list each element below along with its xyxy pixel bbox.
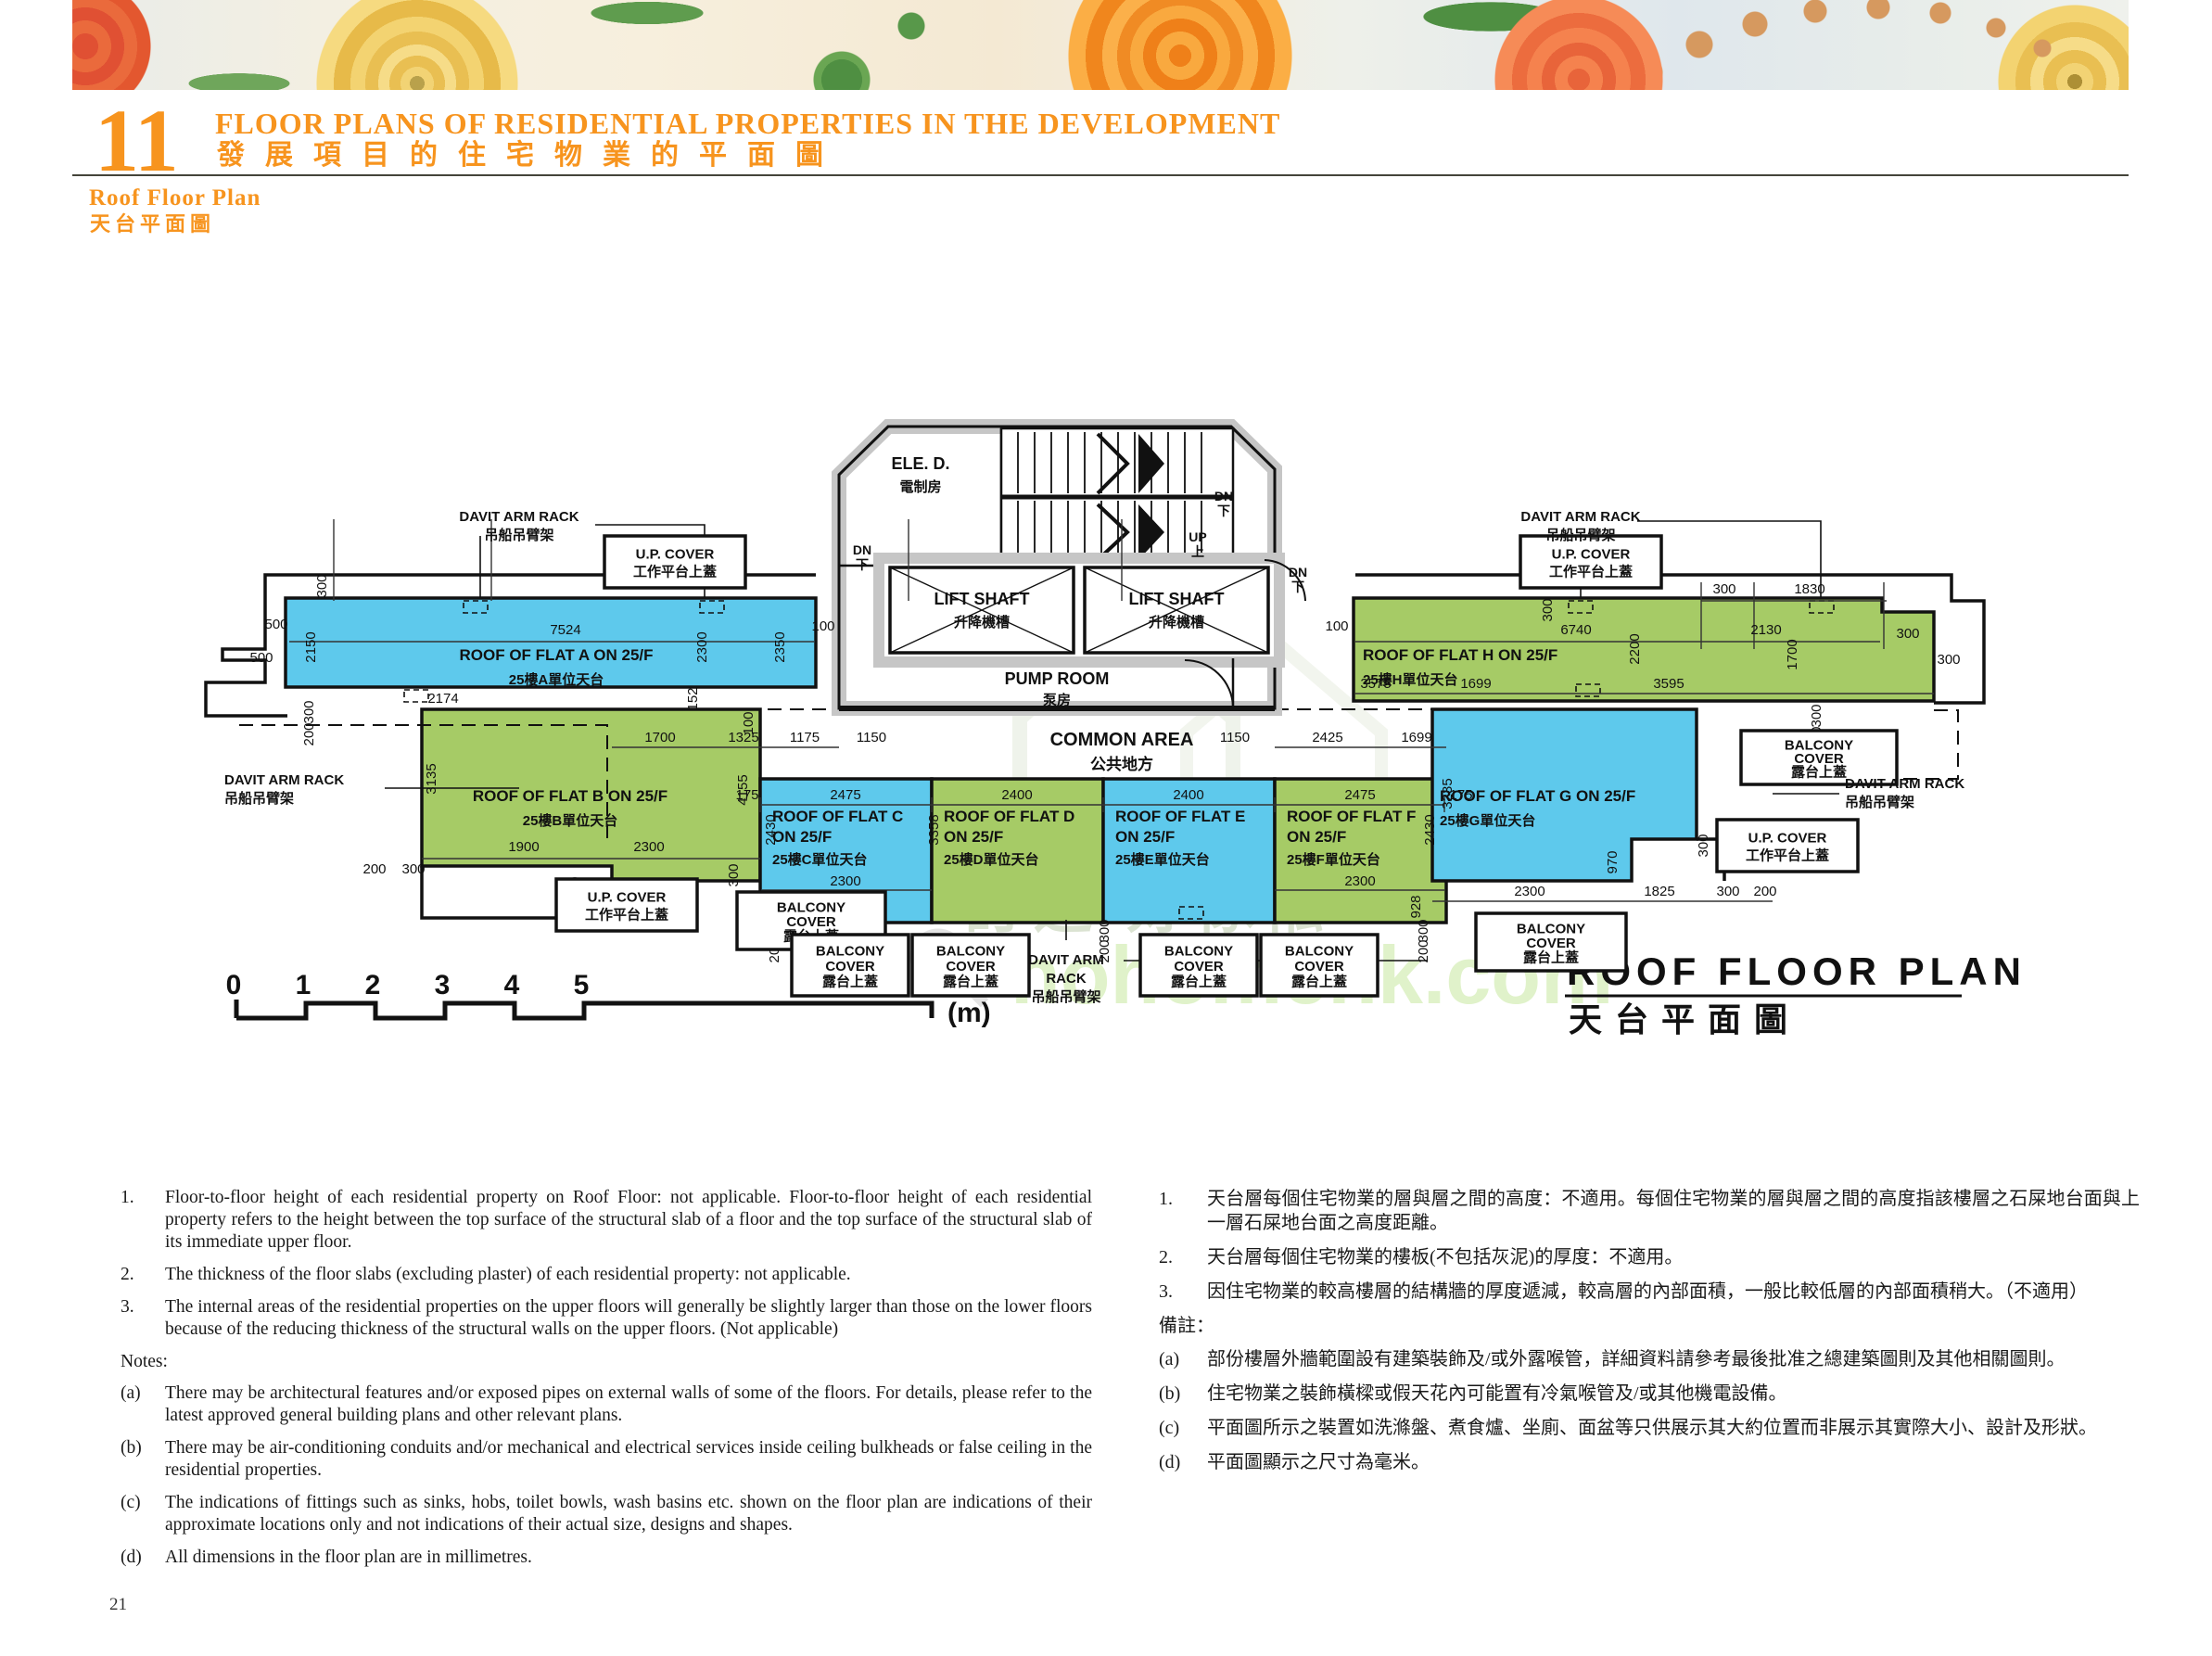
callout-text: BALCONY	[816, 944, 884, 960]
dimension-label: 1830	[1794, 581, 1824, 597]
note-number: 3.	[1159, 1280, 1207, 1304]
note-text: 天台層每個住宅物業的樓板(不包括灰泥)的厚度：不適用。	[1207, 1245, 2140, 1269]
plan-title-block: ROOF FLOOR PLAN 天台平面圖	[1565, 949, 2027, 1038]
dimension-label: 200	[362, 861, 386, 877]
flat-a-label: ROOF OF FLAT A ON 25/F	[459, 646, 653, 664]
flat-g-label: 25樓G單位天台	[1440, 812, 1535, 829]
dimension-label: 3595	[1653, 676, 1684, 692]
note-text: There may be air-conditioning conduits a…	[165, 1437, 1092, 1482]
dimension-label: 2130	[1750, 622, 1781, 638]
scale-tick-1: 1	[296, 970, 311, 1000]
note-text: 平面圖顯示之尺寸為毫米。	[1207, 1450, 2140, 1474]
callout-text: COVER	[1294, 959, 1344, 974]
note-number: 1.	[1159, 1187, 1207, 1235]
callout-text: 工作平台上蓋	[633, 563, 717, 580]
dimension-label: 1700	[1785, 639, 1800, 669]
flat-h-label: 25樓H單位天台	[1363, 671, 1458, 688]
dimension-label: 2300	[830, 873, 860, 889]
dimension-label: 300	[1416, 919, 1431, 942]
dimension-label: 1150	[1220, 730, 1250, 745]
dn-label-1: DN	[853, 542, 871, 557]
dimension-label: 1825	[1644, 884, 1674, 899]
davit-arm-rack-label: DAVIT ARM RACK	[459, 509, 578, 525]
dimension-label: 1325	[728, 730, 758, 745]
dimension-label: 100	[1325, 618, 1348, 634]
callout-text: BALCONY	[1285, 944, 1354, 960]
flat-e-label: 25樓E單位天台	[1115, 851, 1210, 868]
dimension-label: 2174	[427, 691, 458, 707]
flat-a-label: 25樓A單位天台	[509, 671, 604, 688]
flat-e-label: ROOF OF FLAT E	[1115, 808, 1245, 825]
davit-arm-rack-label: 吊船吊臂架	[1031, 988, 1100, 1005]
note-text: The indications of fittings such as sink…	[165, 1492, 1092, 1536]
dimension-label: 3358	[926, 814, 942, 845]
flat-b-label: 25樓B單位天台	[523, 812, 618, 829]
dimension-label: 300	[1716, 884, 1739, 899]
callout-text: 工作平台上蓋	[1746, 847, 1829, 863]
notes-label: Notes:	[121, 1351, 1092, 1373]
note-number: (a)	[1159, 1347, 1207, 1371]
dimension-label: 2350	[772, 631, 788, 662]
flat-d-label: 25樓D單位天台	[944, 851, 1039, 868]
pump-room-label-zh: 泵房	[1043, 692, 1071, 708]
davit-arm-rack-label: 吊船吊臂架	[224, 790, 294, 807]
note-number: (d)	[121, 1547, 165, 1569]
davit-arm-rack-label: 吊船吊臂架	[1545, 527, 1615, 543]
pump-room-label: PUMP ROOM	[1005, 669, 1110, 688]
scale-tick-5: 5	[574, 970, 590, 1000]
dimension-label: 100	[811, 618, 834, 634]
note-number: (c)	[121, 1492, 165, 1536]
callout-text: U.P. COVER	[1552, 547, 1631, 563]
callout-text: BALCONY	[777, 900, 845, 916]
dimension-label: 300	[1896, 626, 1919, 642]
dimension-label: 2400	[1173, 787, 1203, 803]
flat-b-label: ROOF OF FLAT B ON 25/F	[473, 787, 667, 805]
note-item: (a)There may be architectural features a…	[121, 1382, 1092, 1427]
lift-shaft-1-label: LIFT SHAFT	[934, 590, 1030, 608]
dimension-label: 2475	[1344, 787, 1375, 803]
up-label-zh: 上	[1191, 544, 1204, 559]
note-item: (c)平面圖所示之裝置如洗滌盤、煮食爐、坐廁、面盆等只供展示其大約位置而非展示其…	[1159, 1416, 2140, 1440]
dimension-label: 300	[1712, 581, 1735, 597]
dimension-label: 7524	[550, 622, 580, 638]
callout-text: 露台上蓋	[1171, 974, 1227, 990]
dimension-label: 2150	[303, 631, 319, 662]
note-item: 1.Floor-to-floor height of each resident…	[121, 1187, 1092, 1254]
callout-text: U.P. COVER	[588, 890, 667, 906]
dn-label-3-zh: 下	[1291, 580, 1304, 594]
dn-label-2: DN	[1214, 489, 1233, 503]
note-text: 住宅物業之裝飾橫樑或假天花內可能置有冷氣喉管及/或其他機電設備。	[1207, 1382, 2140, 1406]
note-item: (d)平面圖顯示之尺寸為毫米。	[1159, 1450, 2140, 1474]
note-text: The internal areas of the residential pr…	[165, 1296, 1092, 1341]
flat-g-label: ROOF OF FLAT G ON 25/F	[1440, 787, 1635, 805]
note-number: 2.	[121, 1264, 165, 1286]
note-item: (d)All dimensions in the floor plan are …	[121, 1547, 1092, 1569]
callout-text: BALCONY	[1164, 944, 1233, 960]
callout-text: BALCONY	[936, 944, 1005, 960]
dimension-label: 2300	[1514, 884, 1545, 899]
dimension-label: 300	[726, 863, 742, 886]
note-item: 3.The internal areas of the residential …	[121, 1296, 1092, 1341]
dimension-label: 200	[1416, 939, 1431, 962]
scale-tick-3: 3	[435, 970, 451, 1000]
dimension-label: 2400	[1001, 787, 1032, 803]
dn-label-1-zh: 下	[856, 557, 869, 572]
notes-label: 備註：	[1159, 1314, 2140, 1338]
callout-text: COVER	[825, 959, 875, 974]
dimension-label: 2300	[633, 839, 664, 855]
scale-tick-2: 2	[365, 970, 381, 1000]
callout-text: 工作平台上蓋	[1549, 563, 1633, 580]
scale-tick-4: 4	[504, 970, 520, 1000]
dimension-label: 200	[1753, 884, 1776, 899]
note-text: There may be architectural features and/…	[165, 1382, 1092, 1427]
note-text: The thickness of the floor slabs (exclud…	[165, 1264, 1092, 1286]
dimension-label: 3135	[424, 763, 439, 794]
plan-title-zh: 天台平面圖	[1569, 1000, 1800, 1038]
page-number: 21	[109, 1595, 127, 1615]
flat-d-label: ROOF OF FLAT D	[944, 808, 1074, 825]
brochure-page: 11 FLOOR PLANS OF RESIDENTIAL PROPERTIES…	[0, 0, 2212, 1656]
dimension-label: 1175	[790, 730, 820, 745]
note-item: (b)住宅物業之裝飾橫樑或假天花內可能置有冷氣喉管及/或其他機電設備。	[1159, 1382, 2140, 1406]
dimension-label: 300	[1696, 834, 1711, 857]
flat-d-label: ON 25/F	[944, 828, 1003, 846]
dimension-label: 2425	[1312, 730, 1342, 745]
flat-f-label: 25樓F單位天台	[1287, 851, 1380, 868]
davit-arm-rack-label: 吊船吊臂架	[1845, 794, 1914, 810]
common-area-label-zh: 公共地方	[1090, 755, 1153, 773]
callout-text: COVER	[946, 959, 996, 974]
dimension-label: 970	[1605, 850, 1621, 873]
davit-arm-rack-label: DAVIT ARM RACK	[1520, 509, 1640, 525]
note-item: 1.天台層每個住宅物業的層與層之間的高度：不適用。每個住宅物業的層與層之間的高度…	[1159, 1187, 2140, 1235]
roof-floor-plan-drawing: 訂造 好傢俬 hohomehk.com	[0, 0, 2212, 1168]
note-number: (b)	[1159, 1382, 1207, 1406]
note-item: 2.The thickness of the floor slabs (excl…	[121, 1264, 1092, 1286]
flat-c-label: 25樓C單位天台	[772, 851, 868, 868]
common-area-label: COMMON AREA	[1050, 730, 1194, 750]
callout-text: 露台上蓋	[943, 974, 998, 990]
note-number: 3.	[121, 1296, 165, 1341]
dimension-label: 500	[264, 617, 287, 632]
note-text: 部份樓層外牆範圍設有建築裝飾及/或外露喉管，詳細資料請參考最後批准之總建築圖則及…	[1207, 1347, 2140, 1371]
dimension-label: 1150	[857, 730, 886, 745]
dimension-label: 1700	[644, 730, 675, 745]
note-number: 2.	[1159, 1245, 1207, 1269]
dimension-label: 2430	[1422, 814, 1438, 845]
notes-english: 1.Floor-to-floor height of each resident…	[121, 1187, 1092, 1579]
callout-text: 露台上蓋	[1291, 974, 1347, 990]
dimension-label: 175	[735, 787, 758, 803]
dimension-label: 300	[1809, 704, 1824, 727]
note-number: (c)	[1159, 1416, 1207, 1440]
callout-text: 工作平台上蓋	[585, 906, 668, 923]
note-text: 平面圖所示之裝置如洗滌盤、煮食爐、坐廁、面盆等只供展示其大約位置而非展示其實際大…	[1207, 1416, 2140, 1440]
note-text: All dimensions in the floor plan are in …	[165, 1547, 1092, 1569]
davit-arm-rack-label: RACK	[1046, 971, 1086, 987]
dimension-label: 300	[401, 861, 425, 877]
davit-arm-rack-label: DAVIT ARM RACK	[224, 772, 344, 788]
flat-c-label: ON 25/F	[772, 828, 832, 846]
dimension-label: 1900	[508, 839, 539, 855]
note-item: (b)There may be air-conditioning conduit…	[121, 1437, 1092, 1482]
callout-text: COVER	[1174, 959, 1224, 974]
dimension-label: 200	[301, 722, 317, 745]
note-text: 因住宅物業的較高樓層的結構牆的厚度遞減，較高層的內部面積，一般比較低層的內部面積…	[1207, 1280, 2140, 1304]
flat-f-label: ROOF OF FLAT F	[1287, 808, 1416, 825]
notes-chinese: 1.天台層每個住宅物業的層與層之間的高度：不適用。每個住宅物業的層與層之間的高度…	[1159, 1187, 2140, 1484]
lift-shaft-2-label: LIFT SHAFT	[1129, 590, 1225, 608]
davit-arm-rack-label: DAVIT ARM	[1028, 952, 1104, 968]
note-text: Floor-to-floor height of each residentia…	[165, 1187, 1092, 1254]
scale-unit: (m)	[947, 998, 991, 1028]
note-number: (d)	[1159, 1450, 1207, 1474]
dimension-label: 300	[314, 574, 330, 597]
lift-shaft-1-label-zh: 升降機槽	[954, 614, 1010, 631]
lift-shaft-2-label-zh: 升降機槽	[1149, 614, 1204, 631]
dimension-label: 2300	[1344, 873, 1375, 889]
callout-text: 露台上蓋	[1523, 949, 1579, 966]
plan-title: ROOF FLOOR PLAN	[1567, 949, 2027, 993]
callout-text: COVER	[1526, 936, 1576, 951]
dimension-label: 152	[685, 687, 701, 710]
flat-e-label: ON 25/F	[1115, 828, 1175, 846]
up-label: UP	[1189, 529, 1206, 544]
note-item: (a)部份樓層外牆範圍設有建築裝飾及/或外露喉管，詳細資料請參考最後批准之總建築…	[1159, 1347, 2140, 1371]
callout-text: U.P. COVER	[1748, 831, 1827, 847]
dimension-label: 2200	[1627, 633, 1643, 664]
dimension-label: 300	[1097, 919, 1112, 942]
dimension-label: 928	[1408, 895, 1424, 918]
dimension-label: 6740	[1560, 622, 1591, 638]
dimension-label: 300	[1937, 652, 1960, 668]
ele-d-label-zh: 電制房	[899, 478, 941, 495]
core-structure: ELE. D. 電制房 LIFT SHAFT 升降機槽 LIFT SHAFT 升…	[839, 427, 1307, 708]
flat-c-label: ROOF OF FLAT C	[772, 808, 903, 825]
note-number: (b)	[121, 1437, 165, 1482]
callout-text: 露台上蓋	[1791, 764, 1847, 781]
note-item: (c)The indications of fittings such as s…	[121, 1492, 1092, 1536]
note-number: (a)	[121, 1382, 165, 1427]
dimension-label: 500	[249, 650, 273, 666]
note-number: 1.	[121, 1187, 165, 1254]
dimension-label: 300	[301, 700, 317, 723]
note-item: 3.因住宅物業的較高樓層的結構牆的厚度遞減，較高層的內部面積，一般比較低層的內部…	[1159, 1280, 2140, 1304]
callout-text: BALCONY	[1517, 922, 1585, 937]
ele-d-label: ELE. D.	[891, 454, 949, 473]
dimension-label: 1699	[1460, 676, 1491, 692]
dimension-label: 2475	[830, 787, 860, 803]
flat-h-label: ROOF OF FLAT H ON 25/F	[1363, 646, 1557, 664]
davit-arm-rack-label: 吊船吊臂架	[484, 527, 553, 543]
callout-text: U.P. COVER	[636, 547, 715, 563]
dn-label-2-zh: 下	[1217, 503, 1230, 518]
flat-f-label: ON 25/F	[1287, 828, 1346, 846]
note-item: 2.天台層每個住宅物業的樓板(不包括灰泥)的厚度：不適用。	[1159, 1245, 2140, 1269]
callout-text: COVER	[786, 914, 836, 930]
callout-text: 露台上蓋	[822, 974, 878, 990]
note-text: 天台層每個住宅物業的層與層之間的高度：不適用。每個住宅物業的層與層之間的高度指該…	[1207, 1187, 2140, 1235]
scale-tick-0: 0	[226, 970, 242, 1000]
dimension-label: 1699	[1401, 730, 1431, 745]
davit-arm-rack-label: DAVIT ARM RACK	[1845, 776, 1964, 792]
dn-label-3: DN	[1289, 565, 1307, 580]
dimension-label: 300	[1540, 598, 1556, 621]
dimension-label: 2300	[694, 631, 710, 662]
